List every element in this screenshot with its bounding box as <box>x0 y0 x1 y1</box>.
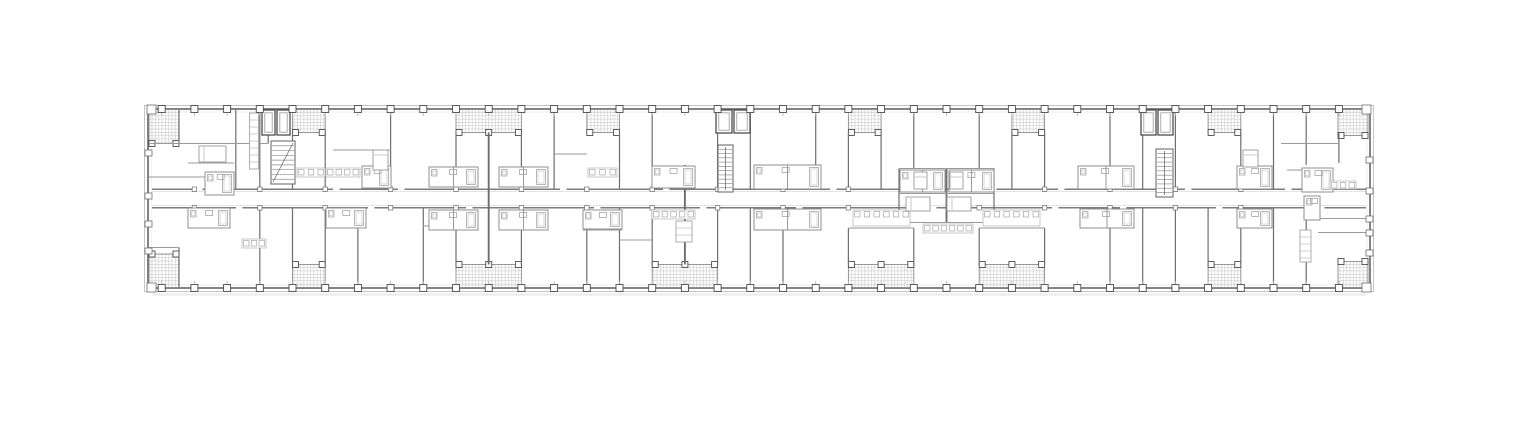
bed <box>950 172 963 189</box>
structural-column <box>1303 285 1310 292</box>
structural-column <box>780 106 787 113</box>
structural-column <box>354 106 361 113</box>
balcony-column <box>1208 130 1214 136</box>
bed <box>914 172 927 189</box>
balcony-column <box>878 262 884 268</box>
corridor-column <box>519 206 523 210</box>
structural-column <box>322 285 329 292</box>
balcony-column <box>293 130 299 136</box>
balcony-column <box>1009 262 1015 268</box>
wall-tick <box>1362 105 1371 114</box>
floor-plan-page <box>0 0 1520 435</box>
corridor-column <box>454 206 458 210</box>
wall-tick <box>145 193 152 199</box>
corridor-column <box>715 206 719 210</box>
balcony-column <box>875 130 881 136</box>
structural-column <box>714 285 721 292</box>
corridor-column <box>977 206 981 210</box>
structural-column <box>387 106 394 113</box>
wall-tick <box>1362 283 1371 292</box>
structural-column <box>812 106 819 113</box>
structural-column <box>224 106 231 113</box>
structural-column <box>1008 106 1015 113</box>
bath-unit <box>188 208 230 228</box>
balcony-column <box>456 262 462 268</box>
balcony-column <box>848 262 854 268</box>
elevator-shaft <box>262 110 275 135</box>
wall-tick <box>1366 230 1373 236</box>
structural-column <box>943 106 950 113</box>
structural-column <box>812 285 819 292</box>
structural-column <box>191 106 198 113</box>
corridor-column <box>846 187 850 191</box>
structural-column <box>616 285 623 292</box>
closet <box>676 221 692 242</box>
structural-column <box>1172 106 1179 113</box>
structural-column <box>322 106 329 113</box>
corridor-column <box>192 187 196 191</box>
corridor-column <box>846 206 850 210</box>
structural-column <box>518 106 525 113</box>
wall-tick <box>1366 157 1373 163</box>
kitchen-counter <box>923 224 973 233</box>
corridor-column <box>1173 187 1177 191</box>
structural-column <box>910 106 917 113</box>
wall-tick <box>145 248 152 254</box>
structural-column <box>583 285 590 292</box>
structural-column <box>289 285 296 292</box>
structural-column <box>1205 106 1212 113</box>
balcony-column <box>515 262 521 268</box>
wall-tick <box>147 283 156 292</box>
corridor-column <box>1042 187 1046 191</box>
corridor-column <box>585 187 589 191</box>
structural-column <box>1335 285 1342 292</box>
structural-column <box>616 106 623 113</box>
elevator-shaft <box>1141 110 1156 135</box>
structural-column <box>1074 106 1081 113</box>
bath-unit <box>1302 168 1333 192</box>
structural-column <box>649 285 656 292</box>
balcony-column <box>515 130 521 136</box>
structural-column <box>747 106 754 113</box>
structural-column <box>747 285 754 292</box>
balcony-column <box>173 251 179 257</box>
balcony-column <box>1235 262 1241 268</box>
corridor-column <box>1173 206 1177 210</box>
structural-column <box>845 106 852 113</box>
balcony-hatch <box>293 265 326 288</box>
structural-column <box>256 285 263 292</box>
structural-column <box>1074 285 1081 292</box>
bed <box>199 146 226 162</box>
corridor-column <box>454 187 458 191</box>
bath-unit <box>1237 209 1272 228</box>
bed <box>947 197 971 211</box>
structural-column <box>910 285 917 292</box>
structural-column <box>1139 106 1146 113</box>
structural-column <box>649 106 656 113</box>
structural-column <box>191 285 198 292</box>
structural-column <box>878 285 885 292</box>
structural-column <box>681 106 688 113</box>
structural-column <box>224 285 231 292</box>
bath-unit <box>652 166 695 188</box>
corridor-column <box>519 187 523 191</box>
structural-column <box>1041 106 1048 113</box>
structural-column <box>1172 285 1179 292</box>
balcony-column <box>848 130 854 136</box>
balcony-column <box>293 262 299 268</box>
closet <box>1300 230 1311 262</box>
structural-column <box>845 285 852 292</box>
wall-tick <box>1366 216 1373 222</box>
bath-unit <box>1237 166 1272 189</box>
kitchen-counter <box>853 210 910 226</box>
structural-column <box>1237 106 1244 113</box>
structural-column <box>420 106 427 113</box>
structural-column <box>1008 285 1015 292</box>
structural-column <box>976 285 983 292</box>
wall-tick <box>145 150 152 156</box>
structural-column <box>681 285 688 292</box>
structural-column <box>453 106 460 113</box>
corridor-column <box>258 187 262 191</box>
structural-column <box>387 285 394 292</box>
balcony-column <box>1362 133 1368 139</box>
structural-column <box>1270 106 1277 113</box>
balcony-column <box>1235 130 1241 136</box>
wall-tick <box>147 105 156 114</box>
wall-tick <box>1366 250 1373 256</box>
structural-column <box>1041 285 1048 292</box>
elevator-shaft <box>277 110 290 135</box>
structural-column <box>1237 285 1244 292</box>
structural-column <box>1139 285 1146 292</box>
wall-tick <box>1366 188 1373 194</box>
balcony-column <box>456 130 462 136</box>
structural-column <box>878 106 885 113</box>
balcony-column <box>979 262 985 268</box>
structural-column <box>976 106 983 113</box>
structural-column <box>354 285 361 292</box>
structural-column <box>714 106 721 113</box>
structural-column <box>1303 106 1310 113</box>
bath-unit <box>583 210 622 229</box>
structural-column <box>1270 285 1277 292</box>
corridor-column <box>585 206 589 210</box>
balcony-column <box>319 262 325 268</box>
bath-unit <box>205 172 234 195</box>
bath-unit <box>326 208 366 228</box>
structural-column <box>158 285 165 292</box>
balcony-column <box>1208 262 1214 268</box>
corridor-column <box>1042 206 1046 210</box>
balcony-column <box>1039 130 1045 136</box>
structural-column <box>420 285 427 292</box>
balcony-column <box>652 262 658 268</box>
balcony-column <box>1039 262 1045 268</box>
structural-column <box>1107 106 1114 113</box>
balcony-column <box>1012 130 1018 136</box>
outer-insulation-line <box>145 106 1374 292</box>
balcony-column <box>908 262 914 268</box>
structural-column <box>551 285 558 292</box>
floor-plan-drawing <box>0 0 1520 435</box>
structural-column <box>158 106 165 113</box>
structural-column <box>289 106 296 113</box>
balcony-column <box>712 262 718 268</box>
balcony-column <box>587 130 593 136</box>
balcony-hatch <box>149 254 179 288</box>
structural-column <box>1205 285 1212 292</box>
bed <box>373 150 388 170</box>
structural-column <box>453 285 460 292</box>
bed <box>906 197 930 211</box>
structural-column <box>583 106 590 113</box>
balcony-hatch <box>149 110 179 144</box>
balcony-hatch <box>1208 265 1241 288</box>
balcony-column <box>1338 259 1344 265</box>
corridor-column <box>258 206 262 210</box>
structural-column <box>551 106 558 113</box>
corridor-column <box>388 206 392 210</box>
balcony-column <box>1362 259 1368 265</box>
kitchen-counter <box>983 210 1040 226</box>
structural-column <box>780 285 787 292</box>
corridor-column <box>323 187 327 191</box>
corridor-column <box>650 206 654 210</box>
structural-column <box>1335 106 1342 113</box>
bed <box>1243 150 1258 167</box>
balcony-column <box>614 130 620 136</box>
structural-column <box>256 106 263 113</box>
balcony-column <box>319 130 325 136</box>
wall-tick <box>145 221 152 227</box>
structural-column <box>1107 285 1114 292</box>
structural-column <box>518 285 525 292</box>
structural-column <box>943 285 950 292</box>
structural-column <box>485 106 492 113</box>
structural-column <box>485 285 492 292</box>
elevator-shaft <box>1158 110 1173 135</box>
